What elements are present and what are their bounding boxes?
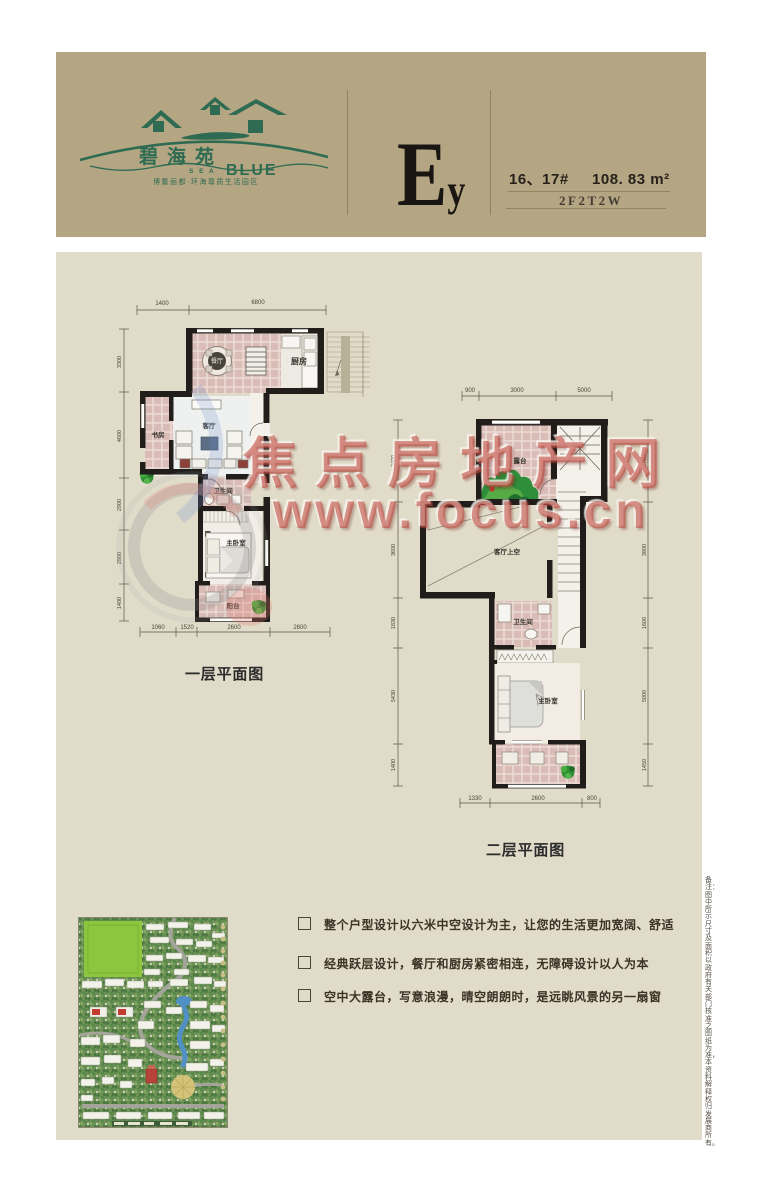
svg-text:博鳌丽都·环海尊质生活园区: 博鳌丽都·环海尊质生活园区 (153, 177, 259, 186)
svg-text:3300: 3300 (117, 356, 123, 368)
svg-text:碧海苑: 碧海苑 (138, 145, 223, 168)
svg-text:BLUE: BLUE (226, 162, 278, 179)
svg-text:1330: 1330 (468, 796, 482, 802)
svg-text:餐厅: 餐厅 (211, 357, 223, 365)
svg-text:厨房: 厨房 (291, 356, 307, 366)
svg-text:5000: 5000 (642, 690, 648, 702)
svg-text:1450: 1450 (642, 759, 648, 771)
svg-text:1400: 1400 (155, 301, 169, 307)
svg-text:2600: 2600 (531, 796, 545, 802)
svg-text:主卧室: 主卧室 (538, 696, 558, 705)
svg-text:1400: 1400 (391, 759, 397, 771)
svg-text:800: 800 (587, 796, 598, 802)
svg-text:S E A: S E A (189, 168, 216, 175)
svg-text:6800: 6800 (251, 300, 265, 306)
svg-text:5430: 5430 (391, 690, 397, 702)
